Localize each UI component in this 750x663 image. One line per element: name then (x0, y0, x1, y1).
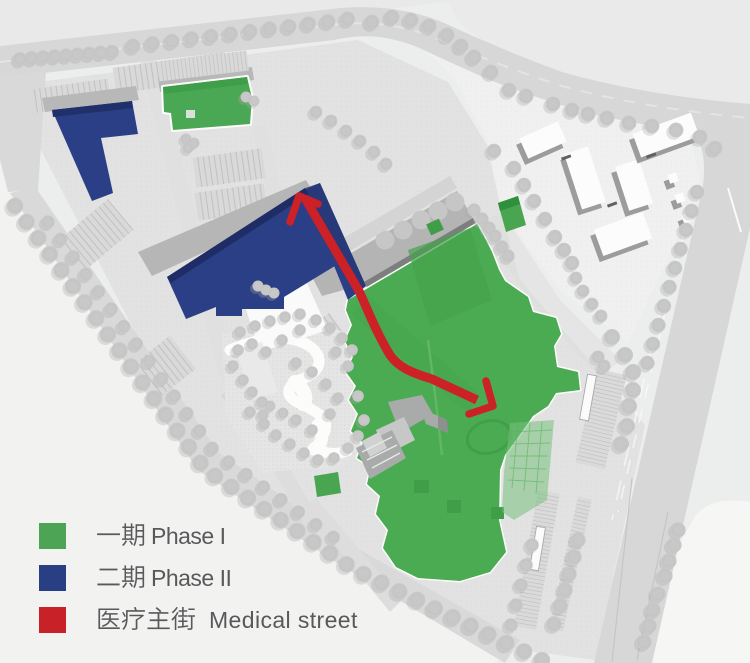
svg-text:Medical street: Medical street (209, 607, 358, 633)
svg-text:Phase I: Phase I (151, 523, 226, 549)
svg-text:Phase II: Phase II (151, 565, 231, 591)
